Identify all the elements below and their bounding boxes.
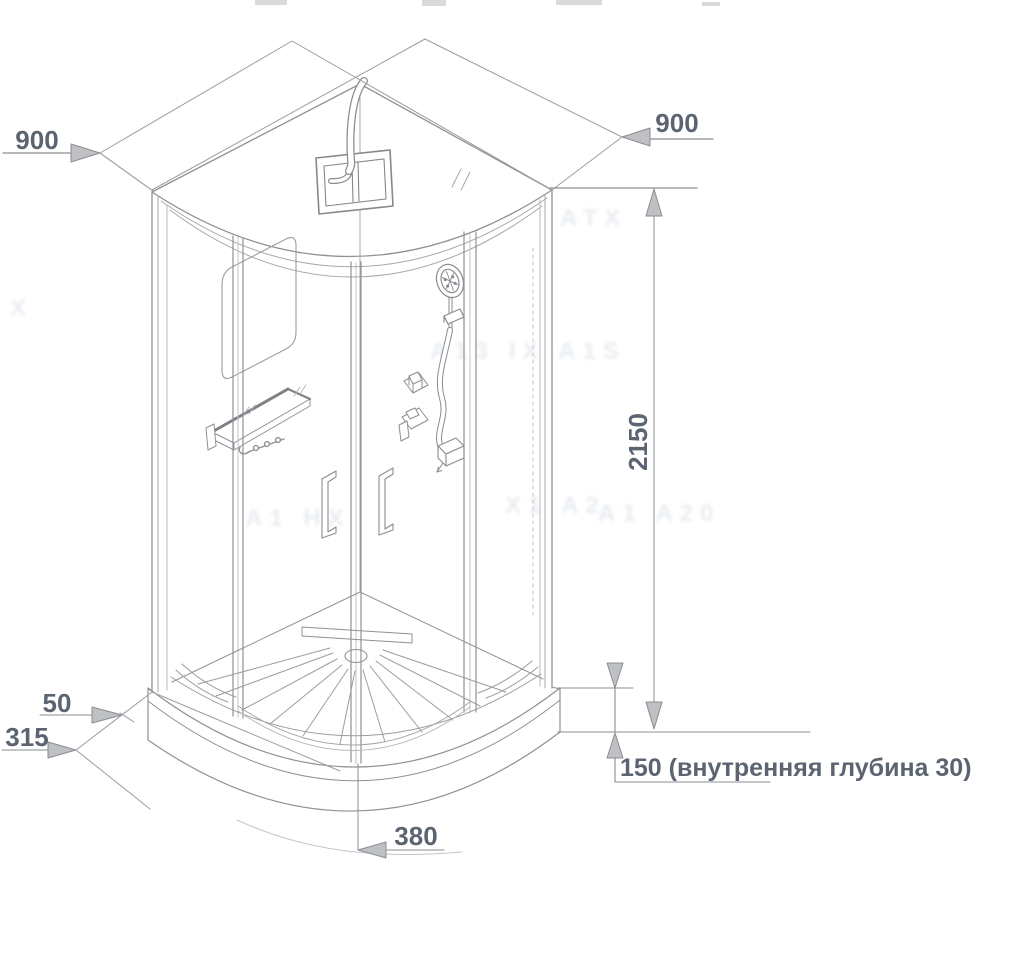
dim-arrow: [646, 189, 662, 216]
towel-hooks: [239, 438, 284, 454]
dim-arrow: [358, 842, 386, 858]
tray-back-ledge: [302, 627, 412, 643]
shower-cabin-drawing: 900 900 2150: [0, 0, 1033, 976]
shower-bracket: [444, 309, 464, 324]
diverter-valve: [404, 372, 428, 393]
dim-arrow: [92, 707, 122, 723]
dim-door-offset: 380: [358, 764, 444, 858]
frame-posts: [233, 232, 476, 764]
dim-width-left: 900: [3, 41, 552, 191]
mixer-valve: [399, 408, 428, 441]
shelf: [206, 385, 310, 450]
dim-arrow: [646, 702, 662, 729]
dim-arrow: [71, 144, 100, 162]
dim-height-label: 2150: [623, 413, 653, 471]
dim-tray-height: 150 (внутренняя глубина 30): [558, 663, 972, 782]
door-handle-left: [322, 471, 336, 538]
drawing-canvas: X A13 IX A1S ATX X1 A2 A1 HX A1 A20: [0, 0, 1033, 976]
dim-door-offset-label: 380: [394, 821, 437, 851]
dim-width-right-label: 900: [655, 108, 698, 138]
dim-arrow: [607, 663, 623, 688]
dim-arrow: [48, 742, 76, 758]
dim-width-left-label: 900: [15, 125, 58, 155]
dim-width-right: 900: [152, 39, 713, 190]
dim-tray-height-label: 150 (внутренняя глубина 30): [620, 754, 972, 782]
door-handle-right: [379, 468, 393, 535]
dim-tray-edge-label: 50: [43, 688, 72, 718]
dim-height: 2150: [550, 188, 697, 729]
hand-shower-hose: [439, 330, 450, 448]
shower-tray: [148, 592, 560, 855]
dim-tray-edge: 50: [40, 688, 134, 723]
hand-shower: [432, 261, 468, 334]
glass-reflection-marks: [452, 169, 470, 190]
right-wall: [533, 190, 552, 688]
left-wall: [152, 192, 167, 692]
dim-arrow: [622, 128, 650, 146]
dim-tray-corner-label: 315: [5, 722, 48, 752]
